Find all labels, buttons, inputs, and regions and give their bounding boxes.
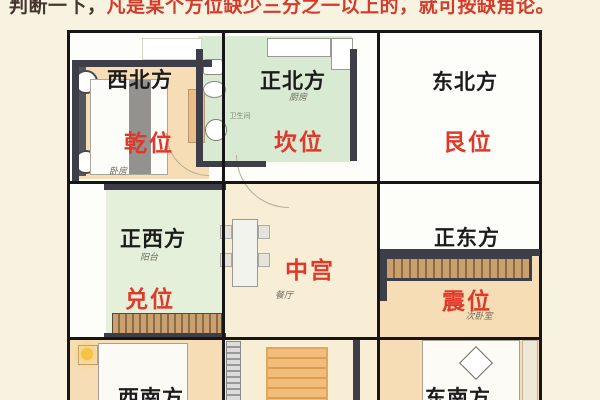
wall-balcony-top — [104, 183, 226, 190]
label-room-bathroom: 卫生间 — [230, 111, 251, 121]
dining-chair-right-1 — [258, 225, 270, 239]
label-palace-dui: 兑位 — [125, 280, 175, 314]
s-cabinet — [266, 347, 328, 400]
label-palace-qian: 乾位 — [124, 124, 174, 158]
sw-lamp — [81, 348, 93, 360]
floor-plan: 西北方 乾位 卧房 正北方 厨房 坎位 卫生间 东北方 艮位 正西方 阳台 兑位… — [67, 30, 542, 400]
wall-s-se-divider — [353, 337, 360, 400]
caption-prefix: 判断一下， — [9, 0, 107, 17]
grid-vertical-2 — [377, 33, 380, 400]
dining-chair-right-2 — [258, 253, 270, 267]
wall-bath-bottom — [196, 161, 266, 167]
nw-sketch-table — [142, 38, 202, 60]
wall-nw-left — [72, 60, 79, 181]
caption: 判断一下，凡是某个方位缺少三分之一以上的，就可按缺角论。 — [9, 0, 555, 18]
label-direction-southwest: 西南方 — [118, 382, 184, 400]
kitchen-counter — [267, 38, 331, 57]
caption-main: 凡是某个方位缺少三分之一以上的，就可按缺角论。 — [107, 0, 556, 17]
label-room-dining: 餐厅 — [275, 288, 293, 301]
label-direction-southeast: 东南方 — [425, 382, 491, 400]
label-direction-east: 正东方 — [434, 222, 500, 252]
se-side-table — [522, 340, 538, 400]
label-room-bedroom-nw: 卧房 — [109, 164, 127, 177]
grid-horizontal-2 — [70, 337, 539, 340]
grid-horizontal-1 — [70, 181, 539, 184]
s-shelf — [226, 341, 241, 400]
label-direction-northwest: 西北方 — [107, 64, 173, 94]
label-room-kitchen: 厨房 — [289, 90, 307, 103]
wall-bath-left — [196, 49, 203, 166]
label-direction-northeast: 东北方 — [432, 66, 498, 96]
grid-vertical-1 — [222, 33, 225, 400]
e-wardrobe — [384, 256, 532, 281]
dining-table — [232, 219, 258, 287]
label-room-bedroom-e: 次卧室 — [465, 309, 492, 322]
label-direction-west: 正西方 — [120, 223, 186, 253]
label-palace-center: 中宫 — [285, 251, 335, 285]
fengshui-floorplan-image: 判断一下，凡是某个方位缺少三分之一以上的，就可按缺角论。 — [0, 0, 600, 400]
label-palace-kan: 坎位 — [274, 123, 324, 157]
wall-kitchen-right — [350, 49, 357, 161]
label-room-balcony: 阳台 — [140, 250, 158, 263]
label-palace-gen: 艮位 — [443, 123, 493, 157]
wall-e-room-left — [380, 249, 387, 301]
